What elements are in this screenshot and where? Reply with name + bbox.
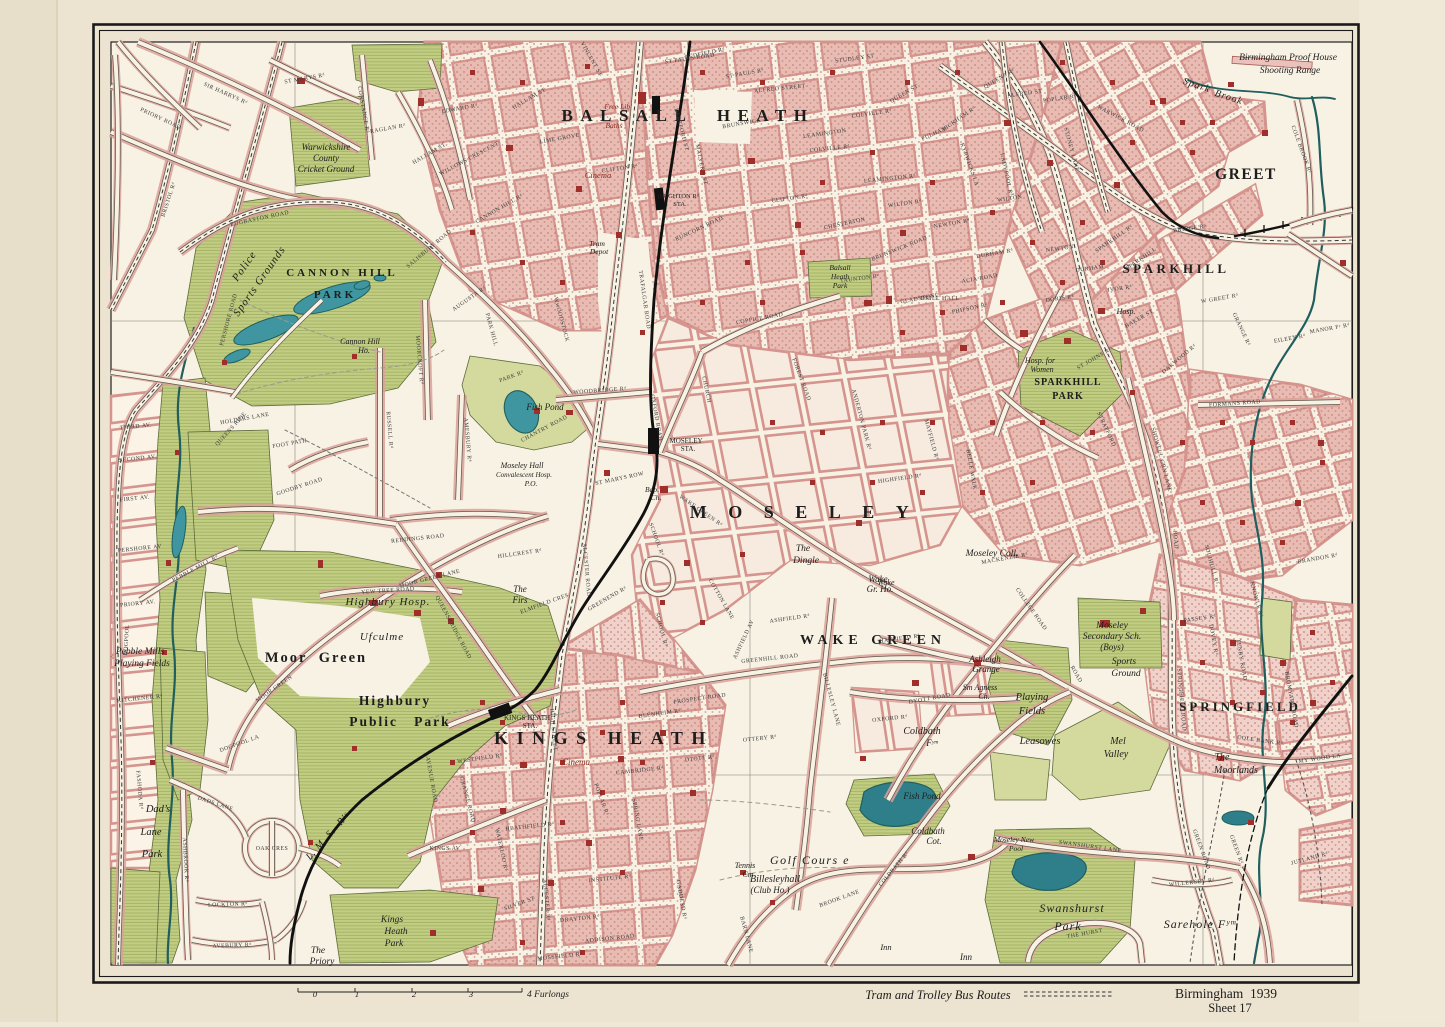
svg-text:Cot.: Cot.: [926, 836, 941, 846]
svg-text:Balsall: Balsall: [829, 263, 850, 272]
svg-text:(Boys): (Boys): [1100, 642, 1124, 652]
svg-text:Ho.: Ho.: [357, 346, 370, 355]
svg-text:Leasowes: Leasowes: [1019, 736, 1061, 747]
svg-text:Cannon Hill: Cannon Hill: [340, 337, 381, 346]
svg-text:KINGS HEATH: KINGS HEATH: [504, 714, 550, 722]
svg-text:Hosp. for: Hosp. for: [1024, 356, 1056, 365]
svg-text:Sarehole Fʸᵐ: Sarehole Fʸᵐ: [1164, 917, 1237, 931]
svg-text:Tennis: Tennis: [735, 861, 756, 870]
svg-text:Moor Green: Moor Green: [265, 650, 367, 666]
svg-text:BRIGHTON Rᵈ: BRIGHTON Rᵈ: [657, 193, 698, 200]
svg-text:Sт Agness: Sт Agness: [963, 683, 997, 692]
svg-text:Highbury: Highbury: [359, 693, 431, 708]
svg-text:Coldbath: Coldbath: [911, 826, 945, 836]
svg-text:Sports: Sports: [1112, 657, 1137, 667]
svg-text:KINGS HEATH: KINGS HEATH: [494, 728, 714, 748]
svg-text:STA.: STA.: [673, 201, 687, 208]
svg-text:Inn: Inn: [879, 942, 891, 952]
svg-text:MOSELEY: MOSELEY: [669, 437, 702, 445]
svg-text:STA.: STA.: [681, 445, 696, 453]
svg-text:Dad’s: Dad’s: [145, 804, 170, 815]
svg-text:P.O.: P.O.: [524, 479, 538, 488]
svg-text:Depot: Depot: [589, 247, 609, 256]
svg-text:Baths: Baths: [605, 121, 622, 130]
svg-text:WAKE GREEN: WAKE GREEN: [800, 633, 946, 648]
svg-text:3: 3: [468, 989, 473, 999]
svg-text:Tram and Trolley Bus Routes: Tram and Trolley Bus Routes: [865, 988, 1011, 1002]
svg-text:Free Libʹ: Free Libʹ: [603, 102, 632, 111]
svg-text:Sheet 17: Sheet 17: [1208, 1001, 1251, 1015]
svg-text:Valley: Valley: [1104, 749, 1129, 760]
svg-text:Moorlands: Moorlands: [1213, 765, 1258, 776]
svg-text:Wake: Wake: [877, 578, 894, 587]
svg-text:Mel: Mel: [1109, 736, 1126, 747]
svg-text:Playing: Playing: [1015, 692, 1049, 703]
svg-text:Convalescent Hosp.: Convalescent Hosp.: [496, 471, 552, 479]
svg-text:Golf Cours e: Golf Cours e: [770, 853, 850, 867]
svg-text:OAK CRES: OAK CRES: [256, 846, 289, 852]
svg-text:Ashleigh: Ashleigh: [968, 654, 1001, 664]
svg-text:Kings: Kings: [380, 915, 403, 925]
svg-text:SPRINGFIELD: SPRINGFIELD: [1179, 699, 1301, 714]
svg-text:Priory: Priory: [309, 957, 336, 967]
svg-text:Grange: Grange: [972, 664, 1000, 674]
svg-text:Firs: Firs: [511, 595, 528, 605]
svg-text:Fish Pond: Fish Pond: [902, 791, 941, 801]
svg-text:Park: Park: [141, 849, 163, 860]
svg-text:Ufculme: Ufculme: [360, 631, 404, 643]
svg-text:Moseley: Moseley: [1095, 621, 1128, 631]
svg-text:CANNON HILL: CANNON HILL: [286, 267, 398, 279]
svg-text:Birmingham Proof House: Birmingham Proof House: [1239, 52, 1337, 63]
svg-text:County: County: [313, 153, 339, 163]
svg-text:Cт: Cт: [742, 870, 753, 879]
svg-text:Swanshurst: Swanshurst: [1039, 901, 1104, 915]
svg-text:The: The: [311, 946, 325, 956]
svg-text:BALSALL HEATH: BALSALL HEATH: [561, 106, 814, 125]
svg-text:Warwickshire: Warwickshire: [302, 142, 351, 152]
svg-text:Ch.: Ch.: [651, 493, 662, 502]
svg-text:Ground: Ground: [1111, 669, 1140, 679]
svg-text:Inn: Inn: [959, 952, 972, 962]
svg-text:Shooting Range: Shooting Range: [1260, 66, 1320, 76]
svg-text:Park: Park: [1053, 919, 1081, 933]
svg-text:Playing Fields: Playing Fields: [113, 659, 170, 669]
svg-text:Highbury Hosp.: Highbury Hosp.: [345, 596, 431, 608]
svg-text:The: The: [796, 544, 810, 554]
svg-text:Fish Pond: Fish Pond: [525, 402, 564, 412]
svg-text:Pool: Pool: [1008, 844, 1023, 853]
svg-text:Secondary Sch.: Secondary Sch.: [1083, 632, 1142, 642]
svg-text:MOSELEY: MOSELEY: [690, 502, 931, 522]
svg-text:Billesleyhall: Billesleyhall: [750, 874, 800, 885]
svg-text:Fʸᵐ: Fʸᵐ: [925, 738, 939, 748]
svg-text:KINGS AV: KINGS AV: [430, 846, 461, 852]
svg-text:Ch.: Ch.: [978, 692, 989, 701]
svg-text:GREET: GREET: [1215, 166, 1277, 183]
svg-text:PARK: PARK: [314, 289, 356, 301]
svg-text:Heath: Heath: [383, 927, 407, 937]
svg-text:4 Furlongs: 4 Furlongs: [527, 990, 569, 1000]
svg-text:SPARKHILL: SPARKHILL: [1034, 377, 1101, 388]
svg-text:Dingle: Dingle: [792, 556, 819, 566]
svg-text:Hosp.: Hosp.: [1116, 307, 1136, 316]
svg-text:The: The: [1215, 752, 1231, 763]
svg-text:Park: Park: [384, 939, 404, 949]
svg-text:Coldbath: Coldbath: [903, 726, 940, 737]
svg-text:1: 1: [355, 989, 359, 999]
svg-text:Women: Women: [1030, 365, 1053, 374]
svg-text:Moseley New: Moseley New: [993, 835, 1034, 844]
svg-text:PARK: PARK: [1052, 391, 1084, 402]
svg-text:Birmingham 1939: Birmingham 1939: [1175, 986, 1277, 1001]
svg-text:Lane: Lane: [140, 827, 162, 838]
svg-text:The: The: [513, 584, 527, 594]
svg-text:Moseley Hall: Moseley Hall: [500, 461, 545, 470]
svg-text:(Club Ho.): (Club Ho.): [751, 885, 790, 895]
svg-text:Fields: Fields: [1018, 706, 1045, 717]
svg-text:STA.: STA.: [523, 722, 538, 730]
svg-text:Public Park: Public Park: [349, 714, 450, 729]
svg-text:Cricket Ground: Cricket Ground: [298, 164, 355, 174]
svg-text:Cinema: Cinema: [562, 757, 590, 767]
